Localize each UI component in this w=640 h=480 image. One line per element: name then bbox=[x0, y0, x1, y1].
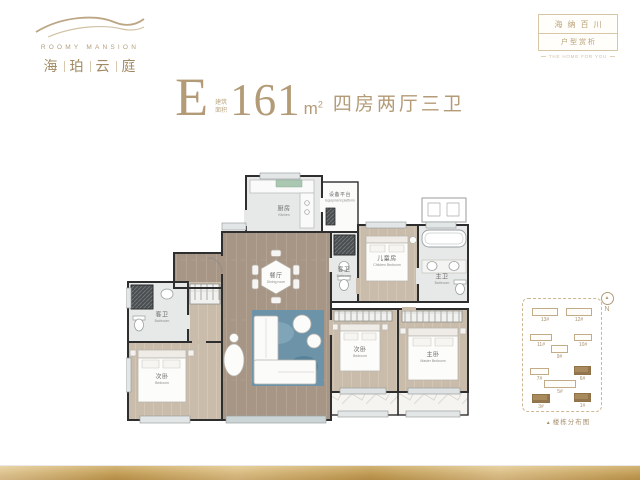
badge-series-sub: 户型赏析 bbox=[539, 34, 617, 50]
brand-char: 海 bbox=[44, 56, 59, 76]
bed-master bbox=[400, 328, 466, 380]
bed-mid bbox=[332, 324, 388, 371]
building-label-6: 6# bbox=[574, 376, 591, 382]
page: ROOMY MANSION 海珀云庭 海纳百川 户型赏析 THE HOME FO… bbox=[0, 0, 640, 480]
building-label-3: 3# bbox=[532, 404, 550, 410]
badge-frame: 海纳百川 户型赏析 bbox=[538, 14, 618, 51]
building-block-7 bbox=[530, 368, 549, 375]
brand-char: 云 bbox=[96, 56, 111, 76]
building-label-9: 9# bbox=[551, 354, 568, 360]
bed-left bbox=[130, 350, 194, 402]
gold-footer-bar bbox=[0, 465, 640, 480]
building-block-6 bbox=[574, 366, 591, 375]
unit-title: E 建筑 面积 161 m2 四房两厅三卫 bbox=[0, 78, 640, 118]
brand-char: 庭 bbox=[122, 56, 137, 76]
building-label-11: 11# bbox=[530, 342, 552, 348]
area-value: 161 bbox=[230, 83, 301, 118]
divider bbox=[64, 61, 65, 72]
compass: ▲ N bbox=[600, 292, 614, 313]
building-block-9 bbox=[551, 345, 568, 353]
building-block-12 bbox=[566, 308, 592, 316]
keyplan: ▲ N 13# 12# 11# 10# 9# 7# 6# 5# 3# 1# ▲楼… bbox=[522, 288, 614, 430]
brand-name-en: ROOMY MANSION bbox=[32, 44, 148, 51]
area-note: 建筑 面积 bbox=[215, 99, 227, 115]
brand-name-cn: 海珀云庭 bbox=[32, 56, 148, 76]
area-unit-m: m bbox=[304, 99, 318, 118]
building-block-10 bbox=[574, 334, 592, 341]
area-unit: m2 bbox=[304, 100, 323, 117]
building-label-12: 12# bbox=[566, 317, 592, 323]
divider bbox=[116, 61, 117, 72]
brand-char: 珀 bbox=[70, 56, 85, 76]
keyplan-caption: ▲楼栋分布图 bbox=[522, 416, 614, 426]
wave-logo-icon bbox=[34, 12, 146, 38]
compass-n-label: N bbox=[600, 306, 614, 313]
unit-letter: E bbox=[175, 78, 208, 118]
brand-logo: ROOMY MANSION 海珀云庭 bbox=[32, 12, 148, 76]
series-badge: 海纳百川 户型赏析 THE HOME FOR YOU bbox=[538, 14, 618, 59]
building-block-5 bbox=[544, 380, 576, 388]
area-note-line2: 面积 bbox=[215, 107, 227, 115]
building-label-10: 10# bbox=[574, 342, 592, 348]
keyplan-caption-text: 楼栋分布图 bbox=[553, 419, 591, 426]
badge-series-name: 海纳百川 bbox=[539, 15, 617, 34]
building-label-1: 1# bbox=[574, 403, 591, 409]
badge-tagline: THE HOME FOR YOU bbox=[538, 54, 618, 59]
building-block-11 bbox=[530, 334, 552, 341]
divider bbox=[90, 61, 91, 72]
floorplan: 厨房Kitchen 设备平台Equipment platform 餐厅Dinin… bbox=[126, 170, 470, 430]
triangle-icon: ▲ bbox=[546, 420, 552, 426]
building-block-1 bbox=[574, 393, 591, 402]
area-unit-exp: 2 bbox=[318, 99, 323, 109]
building-label-13: 13# bbox=[532, 317, 558, 323]
area-note-line1: 建筑 bbox=[215, 99, 227, 107]
floorplan-drawing bbox=[126, 170, 470, 430]
north-arrow-icon: ▲ bbox=[601, 292, 614, 305]
layout-description: 四房两厅三卫 bbox=[333, 89, 465, 116]
building-block-3 bbox=[532, 394, 550, 403]
building-block-13 bbox=[532, 308, 558, 316]
